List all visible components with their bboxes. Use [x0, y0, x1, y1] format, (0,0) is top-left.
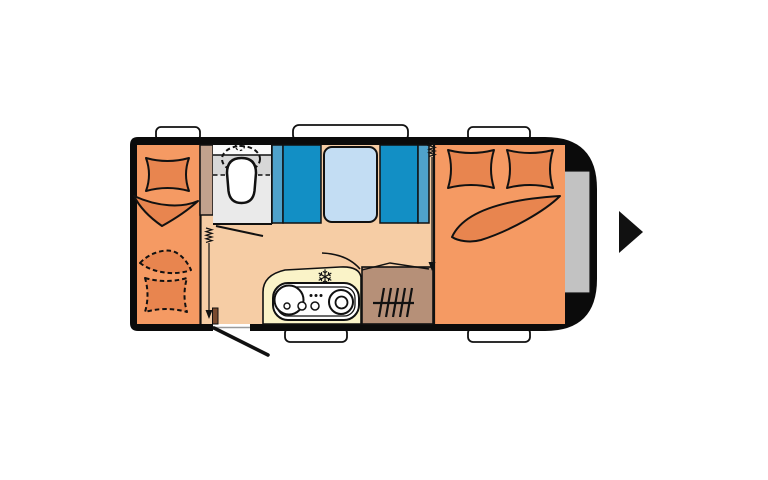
- dinette-table: [324, 147, 377, 222]
- sink-basin: [275, 286, 304, 315]
- washroom: [213, 142, 272, 237]
- hob-burner-large: [336, 297, 348, 309]
- toilet-bowl: [227, 158, 256, 203]
- direction-of-travel-arrow-icon: [619, 211, 643, 253]
- hob-dot-2: [315, 294, 318, 297]
- door-leaf-open: [214, 328, 268, 355]
- dinette: [272, 145, 429, 223]
- hob-burner-small-2: [311, 302, 319, 310]
- bench-right-side-shelf: [418, 145, 429, 223]
- rear-bed-pillow: [146, 158, 189, 191]
- sink-drain: [284, 303, 290, 309]
- front-bed-pillow-right: [507, 150, 553, 188]
- bench-left-side-shelf: [272, 145, 283, 223]
- hob-burner-small-1: [298, 302, 306, 310]
- wardrobe-partition: [200, 145, 213, 215]
- floor-plan-canvas: ❄: [0, 0, 768, 480]
- hob-dot-1: [310, 294, 313, 297]
- front-bed: [434, 145, 565, 324]
- front-locker-strip: [564, 171, 590, 293]
- door-post: [213, 308, 219, 324]
- rear-bed: [134, 145, 201, 324]
- bench-seat-left: [283, 145, 321, 223]
- heater-cabinet: [362, 263, 433, 324]
- rear-bed-pillow-dashed: [145, 278, 187, 312]
- bench-seat-right: [380, 145, 418, 223]
- front-bed-pillow-left: [448, 150, 494, 188]
- hob-dot-3: [320, 294, 323, 297]
- toilet-flush-dot: [239, 145, 241, 147]
- freezer-snowflake-icon: ❄: [317, 265, 334, 289]
- caravan-floor-plan: ❄: [0, 0, 768, 480]
